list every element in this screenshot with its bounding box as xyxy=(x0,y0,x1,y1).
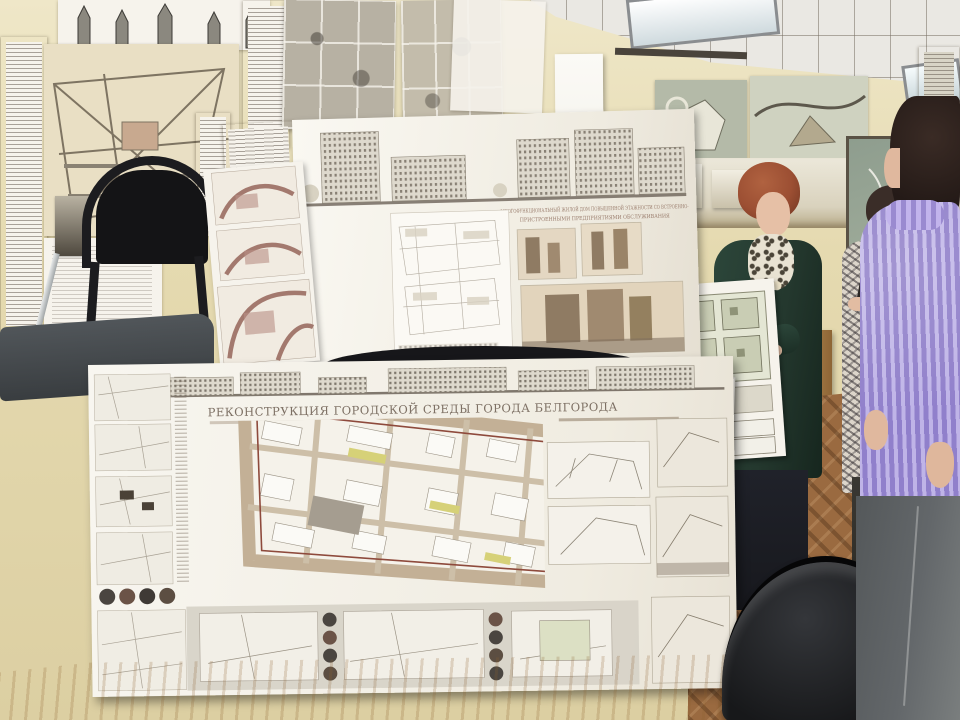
upper-detailed-plan xyxy=(391,210,513,361)
visitor2-left-hand xyxy=(864,410,888,450)
lower-left-map-column xyxy=(94,374,190,691)
exhibition-room-photo: МНОГОФУНКЦИОНАЛЬНЫЙ ЖИЛОЙ ДОМ ПОВЫШЕННОЙ… xyxy=(0,0,960,720)
loose-sheets xyxy=(450,0,546,114)
upper-elevation-strip xyxy=(299,123,686,207)
chair-left-back xyxy=(96,170,208,264)
presenter-face xyxy=(756,192,790,236)
upper-board-graphics: МНОГОФУНКЦИОНАЛЬНЫЙ ЖИЛОЙ ДОМ ПОВЫШЕННОЙ… xyxy=(292,109,701,372)
visitor2-jeans xyxy=(856,496,960,720)
visitor2-right-hand xyxy=(926,442,954,488)
visitor-woman-lavender xyxy=(850,96,960,720)
upper-presentation-board: МНОГОФУНКЦИОНАЛЬНЫЙ ЖИЛОЙ ДОМ ПОВЫШЕННОЙ… xyxy=(292,109,701,372)
lower-presentation-board: РЕКОНСТРУКЦИЯ ГОРОДСКОЙ СРЕДЫ ГОРОДА БЕЛ… xyxy=(88,356,738,697)
poster-notes-strip xyxy=(0,36,48,332)
church-elevation-drawings xyxy=(58,0,270,50)
poster-church-elevations xyxy=(58,0,270,50)
upper-render-thumbnails xyxy=(517,221,685,356)
upper-board-title-line2: ПРИСТРОЕННЫМИ ПРЕДПРИЯТИЯМИ ОБСЛУЖИВАНИЯ xyxy=(520,213,671,223)
lower-board-title: РЕКОНСТРУКЦИЯ ГОРОДСКОЙ СРЕДЫ ГОРОДА БЕЛ… xyxy=(208,400,618,420)
upper-board-maroon-plans xyxy=(203,161,320,369)
photo-dot-row xyxy=(99,588,175,605)
lower-board-graphics: РЕКОНСТРУКЦИЯ ГОРОДСКОЙ СРЕДЫ ГОРОДА БЕЛ… xyxy=(88,356,738,697)
sketch-collage-left xyxy=(282,0,396,131)
visitor2-collar xyxy=(886,200,944,230)
maroon-plan-diagrams xyxy=(203,161,320,369)
lower-elevation-strip xyxy=(96,364,724,398)
visitor2-face-profile xyxy=(884,148,900,188)
